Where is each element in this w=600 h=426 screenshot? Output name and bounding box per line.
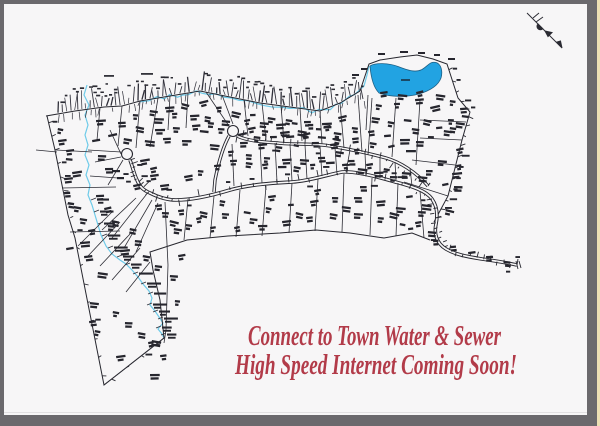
svg-text:High Speed Internet Coming Soo: High Speed Internet Coming Soon! xyxy=(234,350,517,381)
svg-text:Connect to Town Water & Sewer: Connect to Town Water & Sewer xyxy=(248,321,502,352)
